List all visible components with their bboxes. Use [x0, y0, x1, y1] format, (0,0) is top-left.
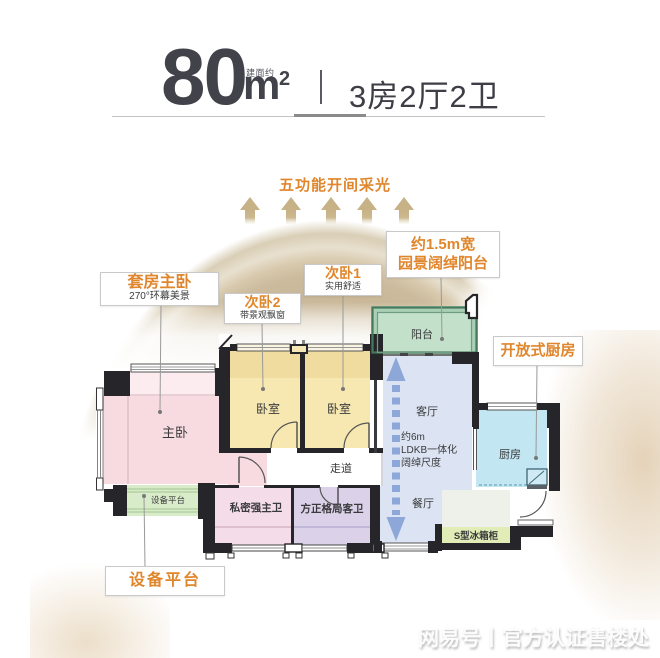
svg-text:阳台: 阳台	[411, 327, 433, 341]
svg-text:方正格局客卫: 方正格局客卫	[301, 502, 364, 515]
svg-text:LDKB一体化: LDKB一体化	[401, 443, 457, 456]
svg-text:走道: 走道	[330, 461, 352, 475]
svg-text:客厅: 客厅	[416, 404, 438, 418]
svg-text:餐厅: 餐厅	[412, 496, 434, 510]
svg-text:约6m: 约6m	[401, 430, 425, 443]
svg-text:卧室: 卧室	[327, 401, 351, 416]
svg-text:S型冰箱柜: S型冰箱柜	[454, 530, 499, 542]
svg-text:主卧: 主卧	[162, 425, 188, 440]
svg-text:卧室: 卧室	[256, 401, 280, 416]
svg-text:厨房: 厨房	[499, 448, 521, 461]
svg-text:私密强主卫: 私密强主卫	[229, 501, 283, 514]
svg-text:阔绰尺度: 阔绰尺度	[401, 456, 441, 469]
svg-text:设备平台: 设备平台	[151, 495, 185, 505]
